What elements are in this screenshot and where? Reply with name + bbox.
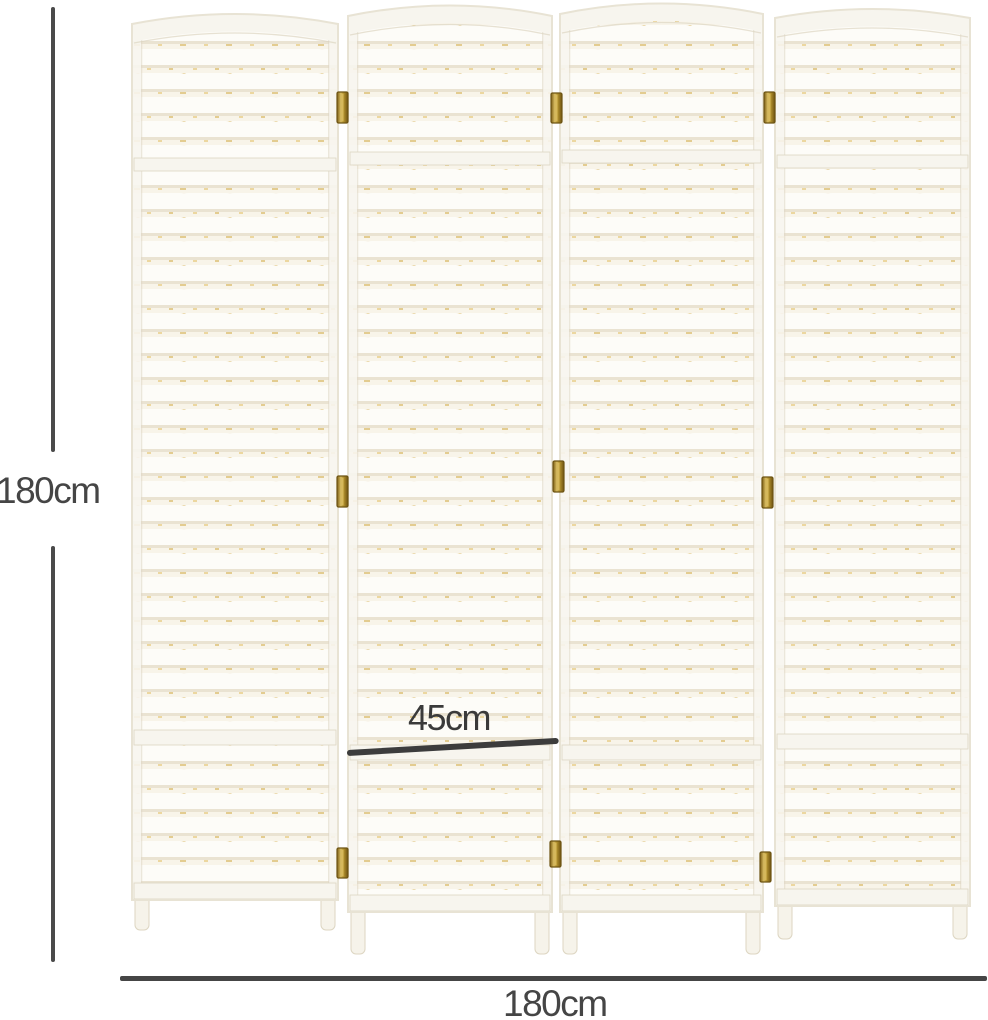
- height-dimension-line-upper: [51, 7, 55, 452]
- panel-width-dimension-label: 45cm: [408, 700, 490, 736]
- total-width-dimension-line: [120, 976, 987, 981]
- divider-panel: [560, 4, 763, 955]
- hinge: [553, 461, 564, 492]
- height-dimension-label: 180cm: [0, 472, 100, 509]
- hinge: [551, 93, 562, 123]
- hinge: [760, 852, 771, 882]
- hinge: [337, 92, 348, 123]
- hinge: [337, 848, 348, 878]
- height-dimension-line-lower: [51, 546, 55, 962]
- divider-panel: [132, 14, 338, 930]
- hinge: [764, 92, 775, 123]
- divider-panel: [348, 6, 552, 955]
- hinge: [337, 476, 348, 507]
- divider-panel: [775, 9, 970, 939]
- product-dimension-diagram: 180cm 45cm 180cm: [0, 0, 988, 1020]
- hinge: [550, 841, 561, 867]
- hinge: [762, 477, 773, 508]
- total-width-dimension-label: 180cm: [503, 985, 607, 1020]
